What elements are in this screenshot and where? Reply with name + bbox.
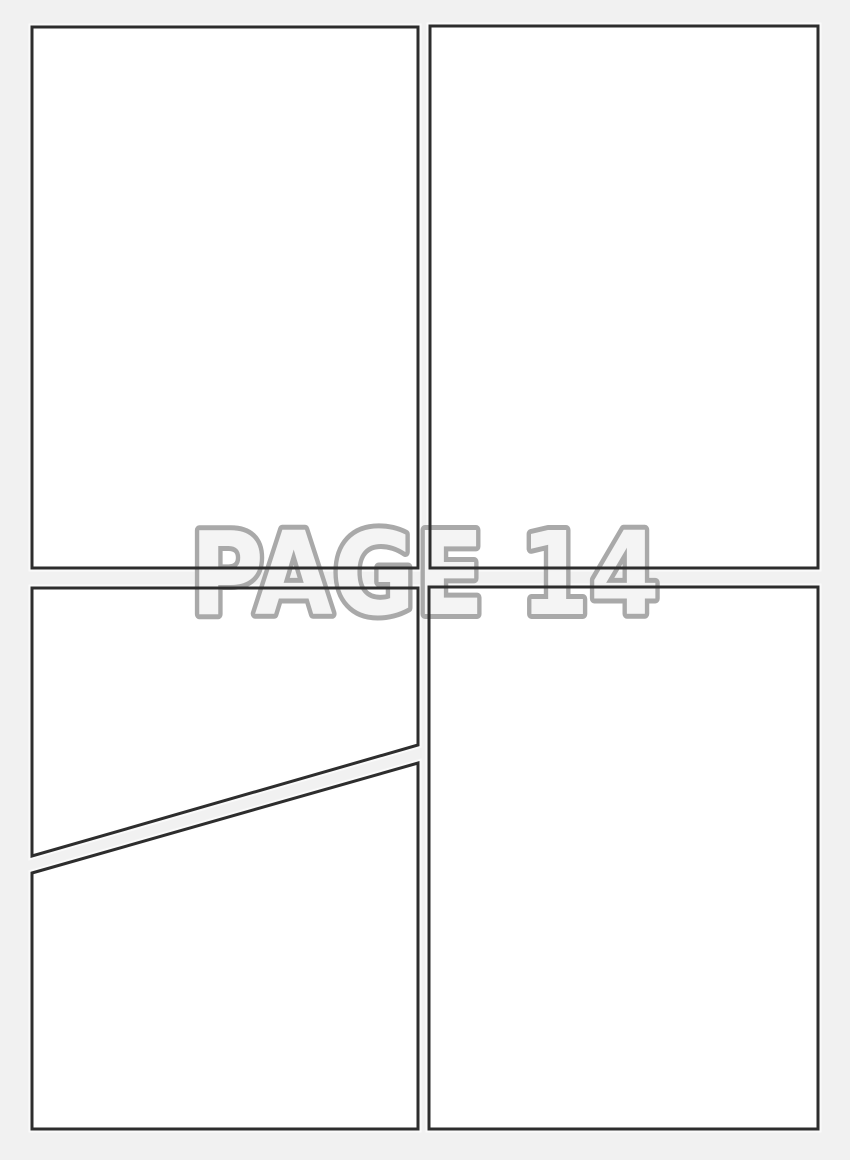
page-watermark: PAGE 14 — [190, 508, 660, 642]
panel-top-right — [430, 26, 818, 568]
comic-page-template: PAGE 14 — [0, 0, 850, 1160]
panel-top-left — [32, 27, 418, 568]
panel-bottom-right — [429, 587, 818, 1129]
